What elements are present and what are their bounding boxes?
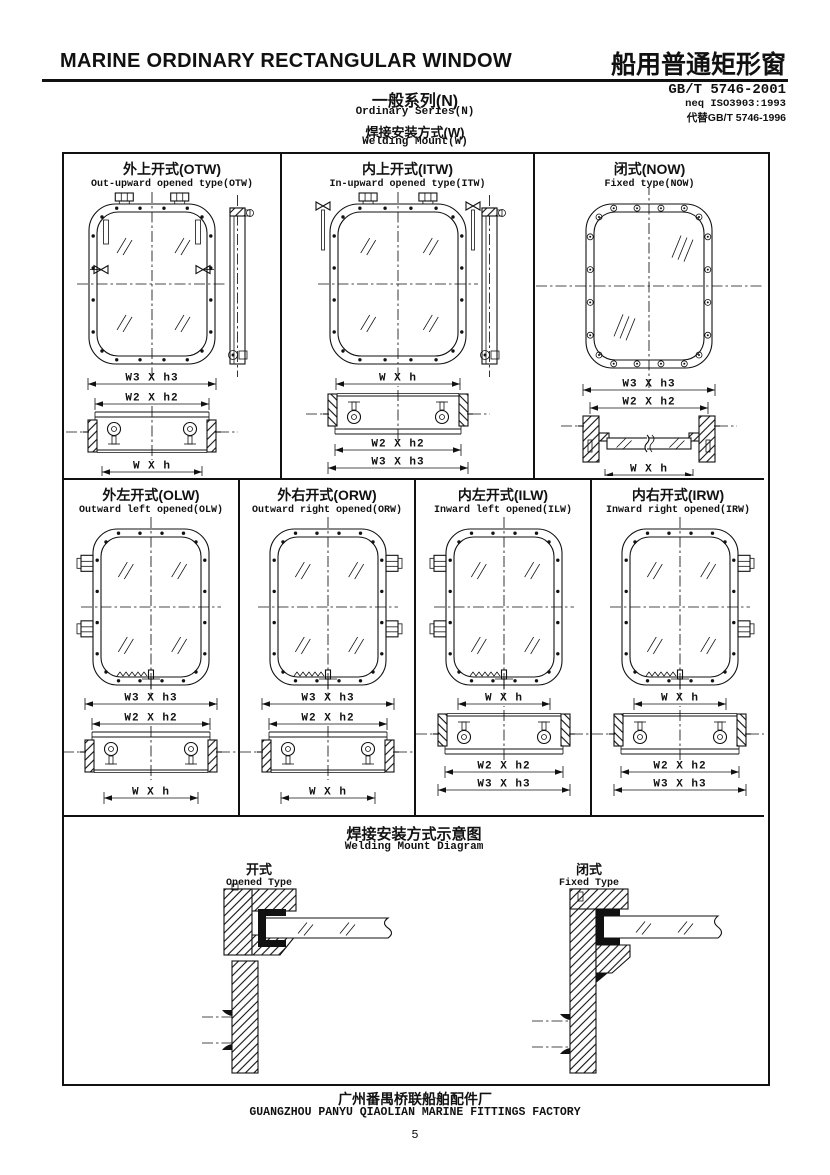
dim-label: W2 X h2 [477, 761, 530, 773]
dimension: W2 X h2 [621, 761, 739, 779]
dim-label: W2 X h2 [622, 397, 675, 409]
window-front-view [430, 517, 574, 697]
dim-label: W3 X h3 [125, 373, 178, 385]
dim-label: W X h [379, 373, 417, 385]
dim-label: W2 X h2 [124, 713, 177, 725]
panel-now: 闭式(NOW) Fixed type(NOW) W3 X h3W2 X h2W … [533, 154, 764, 478]
drawing-sheet-border: 外上开式(OTW) Out-upward opened type(OTW) W3… [62, 152, 770, 1086]
section-view [592, 706, 764, 760]
dim-label: W3 X h3 [477, 779, 530, 791]
panel-otw: 外上开式(OTW) Out-upward opened type(OTW) W3… [64, 154, 280, 478]
dim-label: W X h [630, 464, 668, 476]
row-top-types: 外上开式(OTW) Out-upward opened type(OTW) W3… [64, 154, 764, 478]
ilw-drawing: W X hW2 X h2W3 X h3 [416, 514, 592, 813]
irw-drawing: W X hW2 X h2W3 X h3 [592, 514, 764, 813]
window-front-view [316, 192, 480, 376]
window-front-view [536, 188, 762, 388]
dim-label: W3 X h3 [301, 693, 354, 705]
panel-title-zh: 外左开式(OLW) [64, 480, 238, 505]
standard-number: GB/T 5746-2001 [668, 82, 786, 98]
section-view [306, 386, 490, 440]
dimension: W3 X h3 [328, 457, 468, 475]
section-view [64, 726, 238, 780]
section-view [66, 406, 238, 460]
dim-label: W X h [661, 693, 699, 705]
opened-label-zh: 开式 [194, 859, 324, 878]
dimension: W X h [634, 693, 726, 711]
panel-title-zh: 内右开式(IRW) [592, 480, 764, 505]
window-front-view [77, 517, 221, 697]
row-side-types: 外左开式(OLW) Outward left opened(OLW) W3 X … [64, 478, 764, 817]
dimension: W2 X h2 [335, 439, 461, 457]
standard-replaces: 代替GB/T 5746-1996 [687, 110, 786, 125]
panel-itw: 内上开式(ITW) In-upward opened type(ITW) W X… [280, 154, 533, 478]
dimension: W3 X h3 [583, 379, 715, 397]
window-front-view [610, 517, 754, 697]
dim-label: W X h [133, 461, 171, 473]
dim-label: W2 X h2 [371, 439, 424, 451]
dimension: W X h [102, 461, 202, 477]
now-drawing: W3 X h3W2 X h2W X h [535, 188, 764, 476]
dim-label: W3 X h3 [371, 457, 424, 469]
section-view [561, 416, 737, 462]
window-front-view [77, 192, 227, 376]
weld-section-drawing [202, 884, 392, 1073]
standard-neq: neq ISO3903:1993 [685, 98, 786, 110]
dim-label: W3 X h3 [124, 693, 177, 705]
dimension: W3 X h3 [88, 373, 216, 391]
page-title-en: MARINE ORDINARY RECTANGULAR WINDOW [60, 50, 512, 73]
dimension: W X h [605, 464, 693, 477]
dimension: W3 X h3 [614, 779, 746, 797]
fixed-label-zh: 闭式 [524, 859, 654, 878]
section-view [416, 706, 592, 760]
mount-label-en: Welding Mount(W) [0, 136, 830, 148]
dim-label: W2 X h2 [301, 713, 354, 725]
window-side-view [229, 195, 254, 377]
weld-section-drawing [532, 889, 722, 1073]
dim-label: W2 X h2 [653, 761, 706, 773]
page-title-zh: 船用普通矩形窗 [611, 45, 786, 81]
panel-title-zh: 外右开式(ORW) [240, 480, 414, 505]
olw-drawing: W3 X h3W2 X h2W X h [64, 514, 238, 813]
window-front-view [258, 517, 402, 697]
otw-drawing: W3 X h3W2 X h2W X h [64, 188, 280, 476]
welding-opened-diagram [202, 883, 412, 1079]
welding-fixed-diagram [532, 883, 742, 1079]
dimension: W3 X h3 [438, 779, 570, 797]
panel-title-zh: 闭式(NOW) [535, 154, 764, 179]
section-view [240, 726, 416, 780]
dimension: W X h [281, 787, 375, 805]
panel-title-zh: 内上开式(ITW) [282, 154, 533, 179]
dimension: W2 X h2 [445, 761, 563, 779]
welding-mount-section: 焊接安装方式示意图 Welding Mount Diagram 开式 Opene… [64, 815, 764, 1082]
dimension: W X h [336, 373, 460, 391]
dimension: W X h [104, 787, 198, 805]
dim-label: W X h [485, 693, 523, 705]
dim-label: W2 X h2 [125, 393, 178, 405]
welding-title-en: Welding Mount Diagram [64, 841, 764, 853]
catalog-page: { "header": { "title_en": "MARINE ORDINA… [0, 0, 830, 1175]
panel-title-zh: 外上开式(OTW) [64, 154, 280, 179]
dim-label: W X h [132, 787, 170, 799]
window-side-view [481, 195, 506, 377]
orw-drawing: W3 X h3W2 X h2W X h [240, 514, 416, 813]
dim-label: W3 X h3 [653, 779, 706, 791]
factory-name-en: GUANGZHOU PANYU QIAOLIAN MARINE FITTINGS… [0, 1106, 830, 1119]
itw-drawing: W X hW2 X h2W3 X h3 [282, 188, 535, 476]
panel-title-zh: 内左开式(ILW) [416, 480, 590, 505]
panel-olw: 外左开式(OLW) Outward left opened(OLW) W3 X … [64, 480, 238, 817]
dimension: W X h [458, 693, 550, 711]
dimension: W3 X h3 [85, 693, 217, 711]
dimension: W3 X h3 [262, 693, 394, 711]
panel-irw: 内右开式(IRW) Inward right opened(IRW) W X h… [590, 480, 764, 817]
dim-label: W X h [309, 787, 347, 799]
dimension: W2 X h2 [590, 397, 708, 415]
panel-orw: 外右开式(ORW) Outward right opened(ORW) W3 X… [238, 480, 414, 817]
dim-label: W3 X h3 [622, 379, 675, 391]
panel-ilw: 内左开式(ILW) Inward left opened(ILW) W X hW… [414, 480, 590, 817]
page-number: 5 [0, 1128, 830, 1142]
